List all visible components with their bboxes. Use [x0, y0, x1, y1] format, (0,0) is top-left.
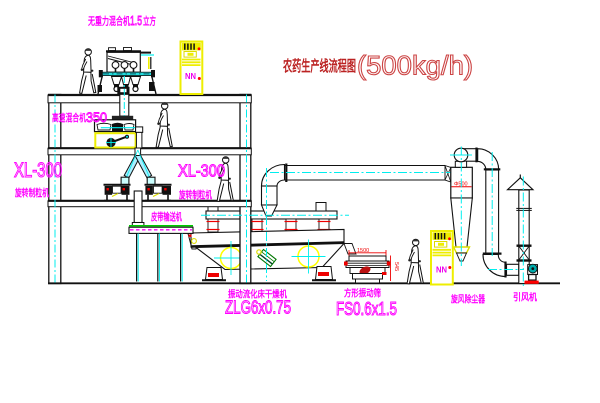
svg-text:1500: 1500	[357, 248, 369, 254]
svg-text:(500kg/h): (500kg/h)	[357, 51, 473, 81]
svg-text:FS0.6x1.5: FS0.6x1.5	[336, 298, 397, 319]
svg-text:NN: NN	[436, 266, 447, 275]
svg-text:农药生产线流程图: 农药生产线流程图	[282, 57, 356, 75]
svg-text:高速混合机: 高速混合机	[52, 112, 86, 125]
svg-text:ZLG6x0.75: ZLG6x0.75	[225, 298, 291, 318]
svg-text:545: 545	[393, 262, 399, 271]
svg-text:立方: 立方	[143, 15, 156, 28]
svg-text:引风机: 引风机	[513, 292, 537, 304]
svg-text:Φ500: Φ500	[454, 182, 468, 188]
svg-text:350: 350	[86, 110, 107, 125]
svg-text:旋转制粒机: 旋转制粒机	[178, 189, 212, 202]
svg-text:XL-300: XL-300	[14, 159, 62, 182]
svg-text:无重力混合机: 无重力混合机	[87, 15, 130, 28]
svg-text:旋转制粒机: 旋转制粒机	[14, 187, 49, 200]
svg-text:NN: NN	[185, 72, 196, 81]
svg-text:1.5: 1.5	[130, 13, 142, 28]
svg-text:旋风除尘器: 旋风除尘器	[450, 294, 485, 306]
svg-text:XL-300: XL-300	[178, 161, 225, 181]
svg-text:皮带输送机: 皮带输送机	[150, 211, 182, 224]
